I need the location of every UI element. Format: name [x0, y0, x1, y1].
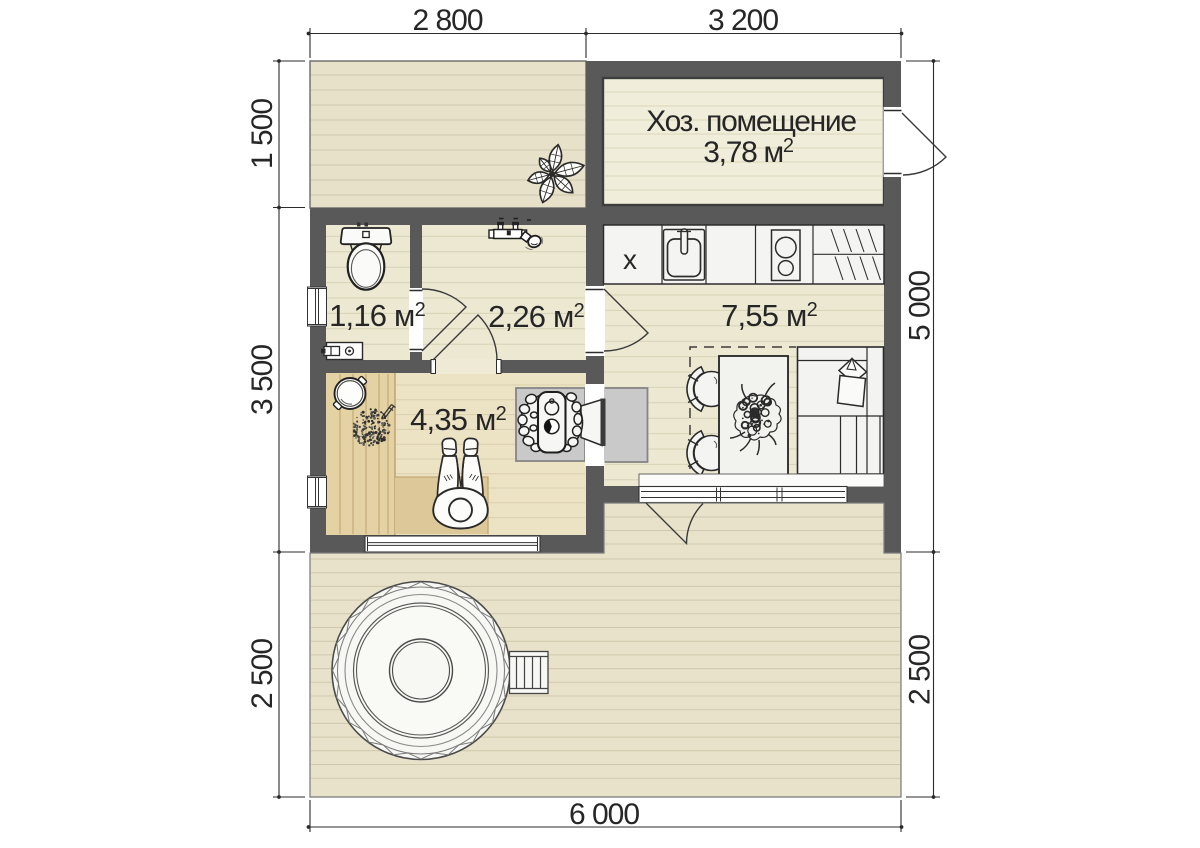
svg-text:2 800: 2 800: [412, 4, 482, 37]
svg-text:6 000: 6 000: [569, 798, 639, 831]
svg-text:2 500: 2 500: [246, 639, 279, 709]
svg-text:1,16 м2: 1,16 м2: [329, 298, 425, 333]
svg-text:7,55 м2: 7,55 м2: [721, 298, 817, 333]
svg-text:Хоз. помещение: Хоз. помещение: [646, 105, 856, 138]
svg-text:1 500: 1 500: [246, 99, 279, 169]
svg-text:3 200: 3 200: [708, 4, 778, 37]
svg-text:х: х: [623, 244, 637, 275]
svg-text:3 500: 3 500: [246, 345, 279, 415]
svg-text:3,78 м2: 3,78 м2: [703, 135, 794, 169]
svg-text:5 000: 5 000: [904, 271, 937, 341]
svg-text:2,26 м2: 2,26 м2: [488, 299, 584, 334]
svg-text:2 500: 2 500: [904, 635, 937, 705]
svg-text:4,35 м2: 4,35 м2: [410, 402, 506, 437]
